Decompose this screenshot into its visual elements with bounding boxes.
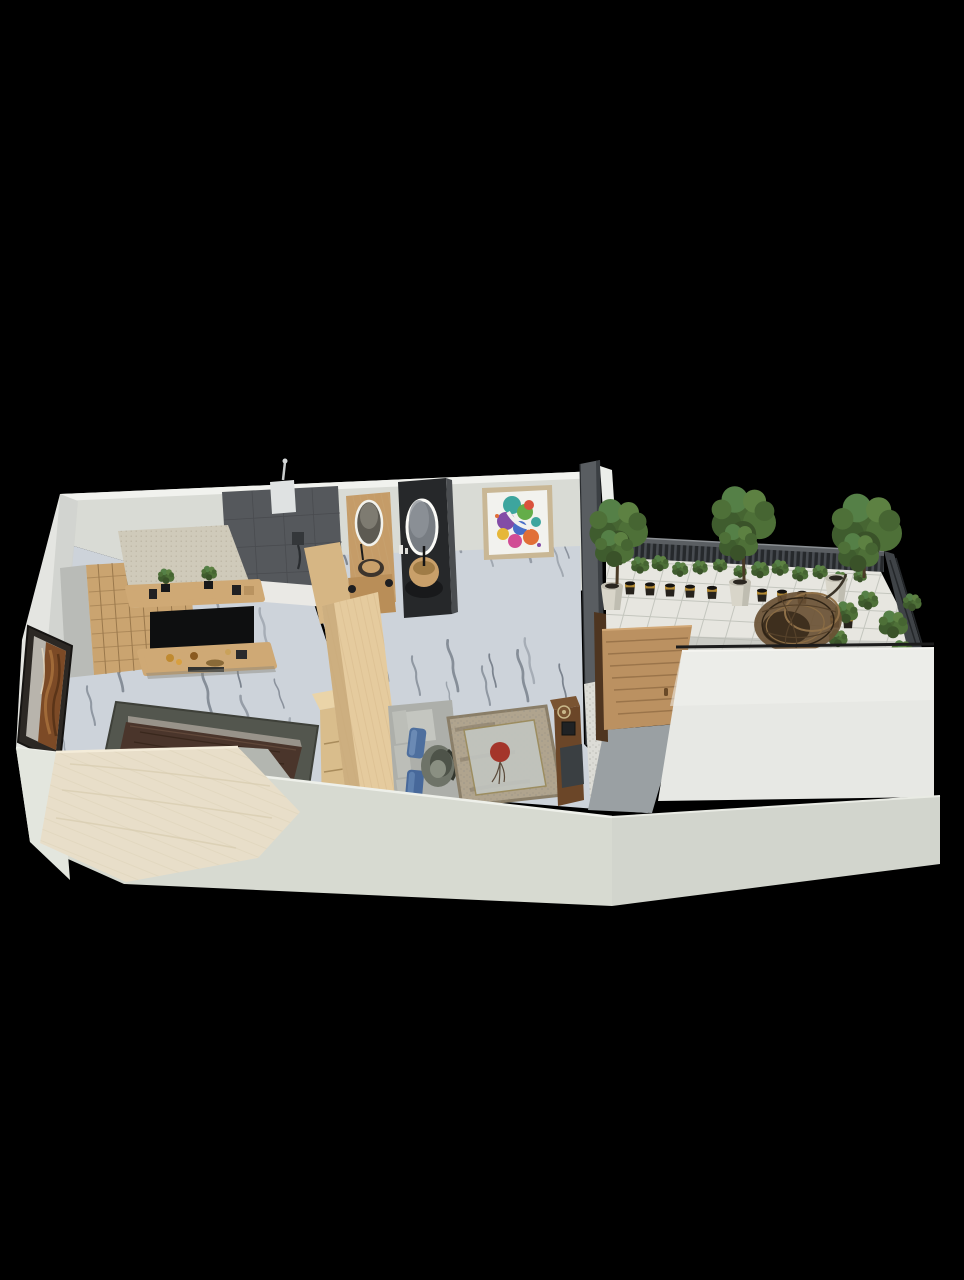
console-screen <box>562 722 575 735</box>
gold-planter-pot <box>645 582 655 595</box>
gold-planter-pot <box>625 581 635 594</box>
candle-jar <box>232 585 241 595</box>
decor-jar <box>348 585 356 593</box>
decor-box <box>244 586 254 595</box>
armchair-cushion <box>430 760 446 778</box>
gold-planter-pot <box>707 586 717 599</box>
emblem-dot <box>562 710 566 714</box>
wall-sheen <box>670 648 934 706</box>
mirror-reflection <box>409 500 429 538</box>
candle-jar <box>149 589 157 599</box>
door-handle <box>664 688 668 696</box>
gold-planter-pot <box>665 584 675 597</box>
round-basin <box>362 561 380 573</box>
mirror-reflection <box>360 503 378 529</box>
soap-bottle <box>399 545 403 554</box>
abstract-wall-art <box>482 485 554 560</box>
white-planter-pot <box>601 582 623 610</box>
gold-planter-pot <box>757 589 767 602</box>
red-medallion <box>490 742 510 762</box>
shower-pipe-tip <box>283 459 288 464</box>
console-dark-front <box>560 744 584 788</box>
gold-planter-pot <box>685 585 695 598</box>
blue-pillow <box>406 727 427 759</box>
vanity-2 <box>398 478 458 618</box>
white-planter-pot <box>729 578 751 606</box>
floor-plan-render <box>0 0 964 1280</box>
floating-shelf-top <box>128 582 262 605</box>
decor-jar <box>385 579 393 587</box>
shower-head-plate <box>270 480 296 514</box>
terrace-front-wall <box>658 644 934 801</box>
soap-bottle <box>405 548 408 554</box>
render-canvas <box>0 0 964 1280</box>
distressed-rug <box>448 706 562 806</box>
